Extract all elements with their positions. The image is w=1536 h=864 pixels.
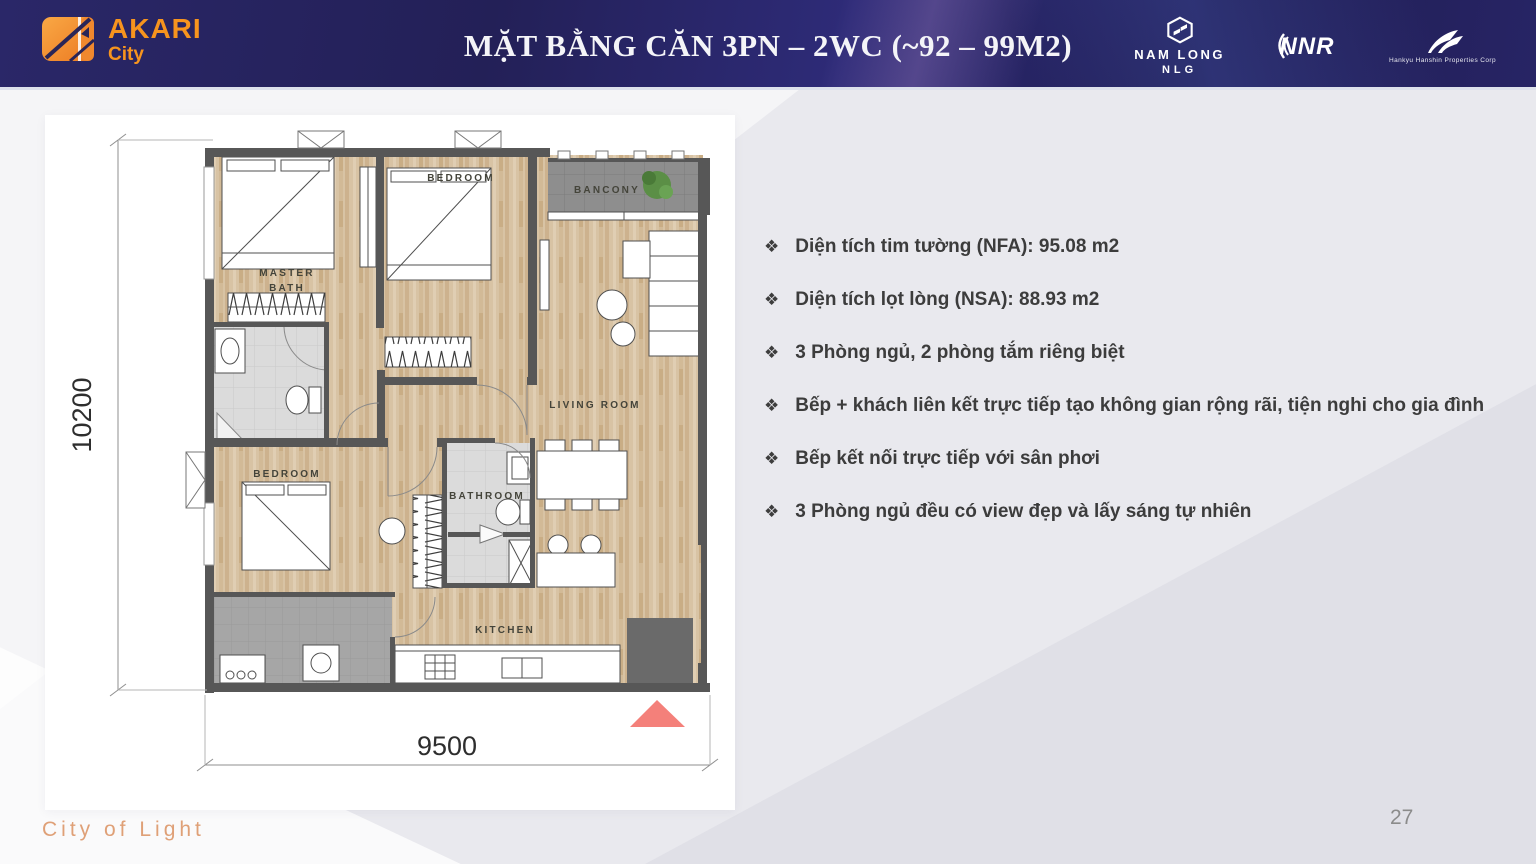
nam-long-label: NAM LONG xyxy=(1134,47,1225,62)
tagline: City of Light xyxy=(42,818,205,842)
hankyu-swoosh-icon xyxy=(1414,29,1470,55)
room-label-master: MASTER xyxy=(259,268,314,279)
diamond-bullet-icon: ❖ xyxy=(764,448,779,470)
spec-text: 3 Phòng ngủ đều có view đẹp và lấy sáng … xyxy=(795,501,1251,523)
spec-item: ❖ 3 Phòng ngủ đều có view đẹp và lấy sán… xyxy=(764,501,1536,523)
brand-name: AKARI xyxy=(108,15,202,43)
diamond-bullet-icon: ❖ xyxy=(764,289,779,311)
room-label-balcony: BANCONY xyxy=(574,185,640,196)
partner-hankyu: Hankyu Hanshin Properties Corp xyxy=(1389,29,1496,64)
spec-item: ❖ Bếp + khách liên kết trực tiếp tạo khô… xyxy=(764,395,1536,417)
slide: AKARI City MẶT BẰNG CĂN 3PN – 2WC (~92 –… xyxy=(0,0,1536,864)
spec-text: Diện tích lọt lòng (NSA): 88.93 m2 xyxy=(795,289,1099,311)
spec-text: 3 Phòng ngủ, 2 phòng tắm riêng biệt xyxy=(795,342,1124,364)
nlg-label: NLG xyxy=(1162,64,1197,76)
spec-text: Bếp kết nối trực tiếp với sân phơi xyxy=(795,448,1100,470)
dimension-height: 10200 xyxy=(67,377,97,452)
entry-mat xyxy=(627,618,693,684)
spec-text: Bếp + khách liên kết trực tiếp tạo không… xyxy=(795,395,1484,417)
page-number: 27 xyxy=(1390,806,1413,830)
room-label-bedroom-top: BEDROOM xyxy=(427,173,495,184)
partner-nam-long: NAM LONG NLG xyxy=(1134,16,1225,76)
room-label-bathroom: BATHROOM xyxy=(449,491,525,502)
nnr-label: NNR xyxy=(1279,33,1334,61)
diamond-bullet-icon: ❖ xyxy=(764,236,779,258)
spec-item: ❖ 3 Phòng ngủ, 2 phòng tắm riêng biệt xyxy=(764,342,1536,364)
nam-long-cube-icon xyxy=(1165,16,1195,44)
partner-nnr: NNR xyxy=(1271,31,1343,61)
spec-text: Diện tích tim tường (NFA): 95.08 m2 xyxy=(795,236,1119,258)
akari-brand: AKARI City xyxy=(40,14,202,64)
room-label-bedroom-bottom: BEDROOM xyxy=(253,469,321,480)
room-label-living-room: LIVING ROOM xyxy=(549,400,640,411)
header-bar: AKARI City MẶT BẰNG CĂN 3PN – 2WC (~92 –… xyxy=(0,0,1536,90)
diamond-bullet-icon: ❖ xyxy=(764,395,779,417)
partner-logos: NAM LONG NLG NNR Hankyu Hanshin Properti… xyxy=(1134,16,1496,76)
hankyu-label: Hankyu Hanshin Properties Corp xyxy=(1389,57,1496,64)
spec-item: ❖ Bếp kết nối trực tiếp với sân phơi xyxy=(764,448,1536,470)
floorplan-card: MASTER BATH BEDROOM BANCONY LIVING ROOM … xyxy=(45,115,735,810)
diamond-bullet-icon: ❖ xyxy=(764,342,779,364)
diamond-bullet-icon: ❖ xyxy=(764,501,779,523)
brand-sub: City xyxy=(108,45,202,64)
akari-logo-icon xyxy=(40,14,96,64)
page-title: MẶT BẰNG CĂN 3PN – 2WC (~92 – 99M2) xyxy=(464,28,1072,64)
spec-list: ❖ Diện tích tim tường (NFA): 95.08 m2 ❖ … xyxy=(764,236,1536,554)
brand-text: AKARI City xyxy=(108,15,202,64)
dimension-width: 9500 xyxy=(417,731,477,761)
floorplan-drawing: MASTER BATH BEDROOM BANCONY LIVING ROOM … xyxy=(45,115,735,810)
spec-item: ❖ Diện tích lọt lòng (NSA): 88.93 m2 xyxy=(764,289,1536,311)
room-label-kitchen: KITCHEN xyxy=(475,625,535,636)
room-label-master-bath: BATH xyxy=(269,283,305,294)
entry-arrow-icon xyxy=(630,700,685,727)
spec-item: ❖ Diện tích tim tường (NFA): 95.08 m2 xyxy=(764,236,1536,258)
